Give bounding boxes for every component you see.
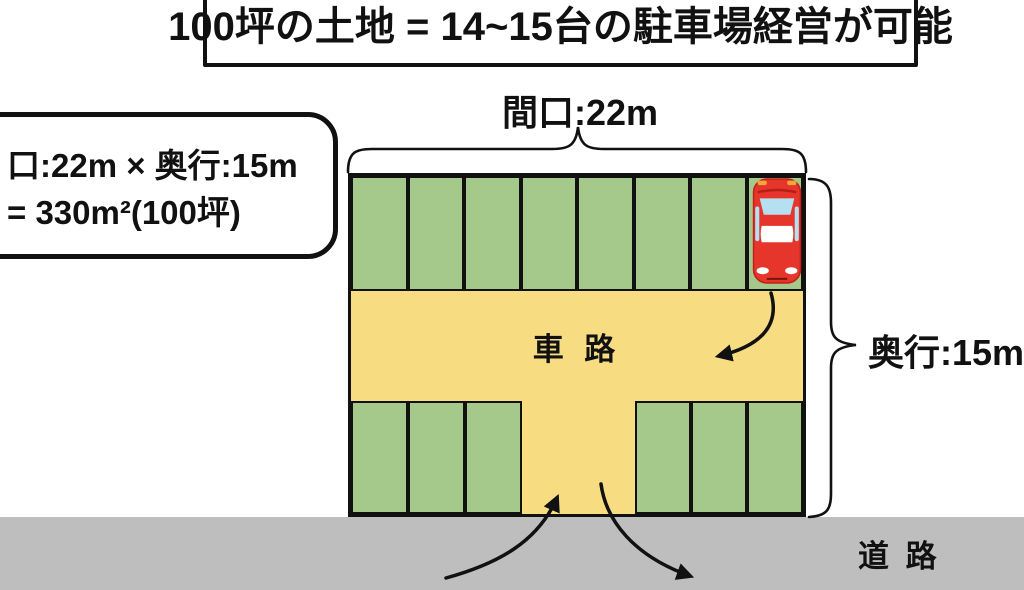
car-side-window-right — [795, 207, 799, 242]
parking-stall — [464, 176, 521, 291]
driveway-area: 車 路 — [351, 291, 803, 401]
parking-stall — [635, 401, 691, 514]
car-taillight-right — [785, 267, 797, 274]
parking-stall — [747, 401, 803, 514]
car-roof-stripe — [761, 226, 794, 242]
parking-stall — [577, 176, 634, 291]
parking-stall — [408, 176, 465, 291]
parking-stall — [690, 176, 747, 291]
top-stall-row — [351, 176, 803, 291]
bottom-right-stall-group — [635, 401, 803, 514]
parking-stall — [351, 401, 408, 514]
car-headlight-right — [787, 181, 796, 186]
area-line-2: = 330m²(100坪) — [7, 190, 333, 237]
frontage-label: 間口:22m — [430, 84, 730, 136]
area-line-1: 口:22m × 奥行:15m — [7, 143, 333, 190]
title-box: 100坪の土地 = 14~15台の駐車場経営が可能 — [203, 0, 918, 67]
parking-stall — [465, 401, 522, 514]
road-label: 道 路 — [858, 531, 941, 576]
bottom-left-stall-group — [351, 401, 522, 514]
title-text: 100坪の土地 = 14~15台の駐車場経営が可能 — [168, 0, 953, 52]
area-info-box: 口:22m × 奥行:15m = 330m²(100坪) — [0, 112, 338, 259]
red-car-icon — [751, 177, 803, 285]
car-headlight-left — [758, 181, 767, 186]
bottom-stall-row — [351, 401, 803, 514]
road-strip: 道 路 — [0, 517, 1024, 590]
parking-stall — [351, 176, 408, 291]
parking-lot: 車 路 — [348, 173, 806, 517]
parking-stall — [408, 401, 465, 514]
depth-brace — [809, 179, 856, 517]
depth-label: 奥行:15m — [868, 324, 1024, 376]
parking-stall — [691, 401, 747, 514]
parking-stall — [634, 176, 691, 291]
entrance-gap — [522, 401, 635, 514]
car-side-window-left — [755, 207, 759, 242]
car-windshield — [760, 198, 795, 214]
diagram-canvas: 道 路 車 路 100坪の土地 = 14~15台の駐車場経営が可能 口:22m … — [0, 0, 1024, 590]
car-taillight-left — [757, 267, 769, 274]
driveway-label: 車 路 — [533, 324, 622, 369]
parking-stall — [521, 176, 578, 291]
